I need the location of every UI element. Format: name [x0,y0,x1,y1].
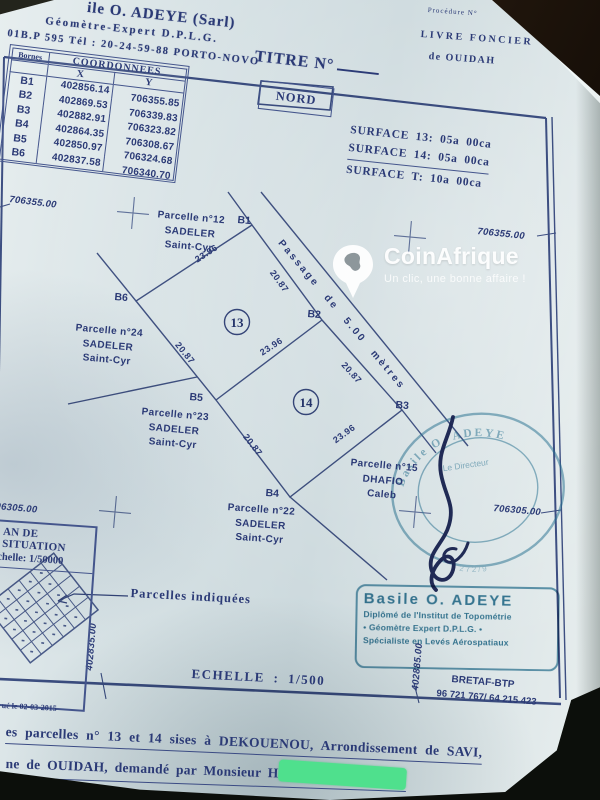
parcel-label-24: Parcelle n°24 SADELER Saint-Cyr [54,320,161,372]
borne-label-b2: B2 [307,308,321,321]
borne-label-b4: B4 [265,487,279,500]
coinafrique-pin-icon [330,243,376,301]
rect-stamp: Basile O. ADEYE Diplômé de l'Institut de… [355,584,560,672]
round-stamp-center-text: Le Directeur [442,457,489,473]
parcel-label-12: Parcelle n°12 SADELER Saint-Cyr [138,207,241,259]
borne-label-b6: B6 [114,291,128,304]
situation-map: AN DE SITUATION chelle: 1/50000 [0,516,98,712]
borne-label-b1: B1 [237,214,251,227]
parcel-label-23: Parcelle n°23 SADELER Saint-Cyr [122,404,225,456]
north-label: NORD [275,89,317,109]
footer-line-2-text: ne de OUIDAH, demandé par Monsieur [5,756,268,780]
svg-text:272/9: 272/9 [459,564,490,574]
lot-number-13: 13 [231,315,245,330]
borne-cell: B6 [0,144,38,163]
watermark-tagline: Un clic, une bonne affaire ! [384,273,526,285]
coordinates-table: Bornes COORDONNEES X Y B1402856.14706355… [0,44,190,183]
parcel-label-15: Parcelle n°15 DHAFIO Caleb [331,455,434,507]
watermark-brand: CoinAfrique [384,243,526,270]
round-stamp-bottom-text: 272/9 [459,564,490,574]
borne-label-b3: B3 [395,399,409,412]
watermark: CoinAfrique Un clic, une bonne affaire ! [330,243,526,301]
lot-number-14: 14 [300,395,314,410]
stamp-line4: Spécialiste en Levés Aérospatiaux [363,634,551,650]
parcel-label-22: Parcelle n°22 SADELER Saint-Cyr [209,500,312,550]
borne-label-b5: B5 [189,391,203,404]
photo-of-document: { "colors": { "photo_bg": "#17100b", "in… [0,0,600,800]
